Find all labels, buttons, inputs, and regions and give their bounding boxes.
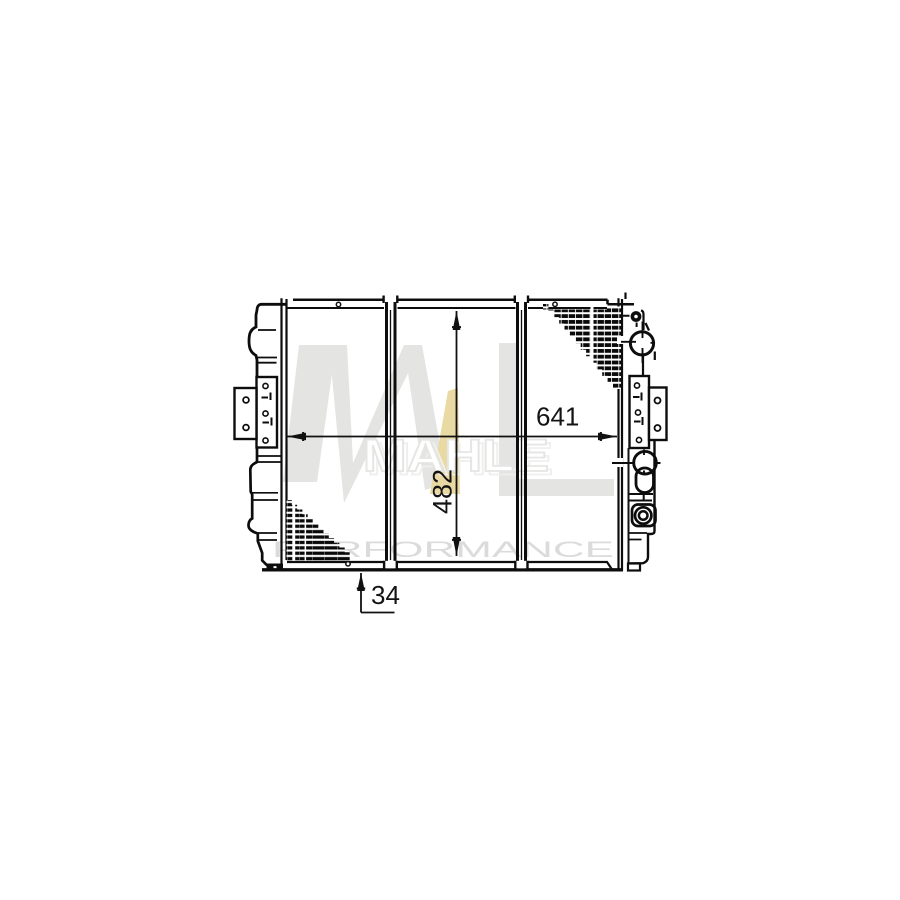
svg-text:641: 641 xyxy=(536,402,579,432)
svg-text:482: 482 xyxy=(428,469,458,514)
svg-text:34: 34 xyxy=(371,580,400,610)
